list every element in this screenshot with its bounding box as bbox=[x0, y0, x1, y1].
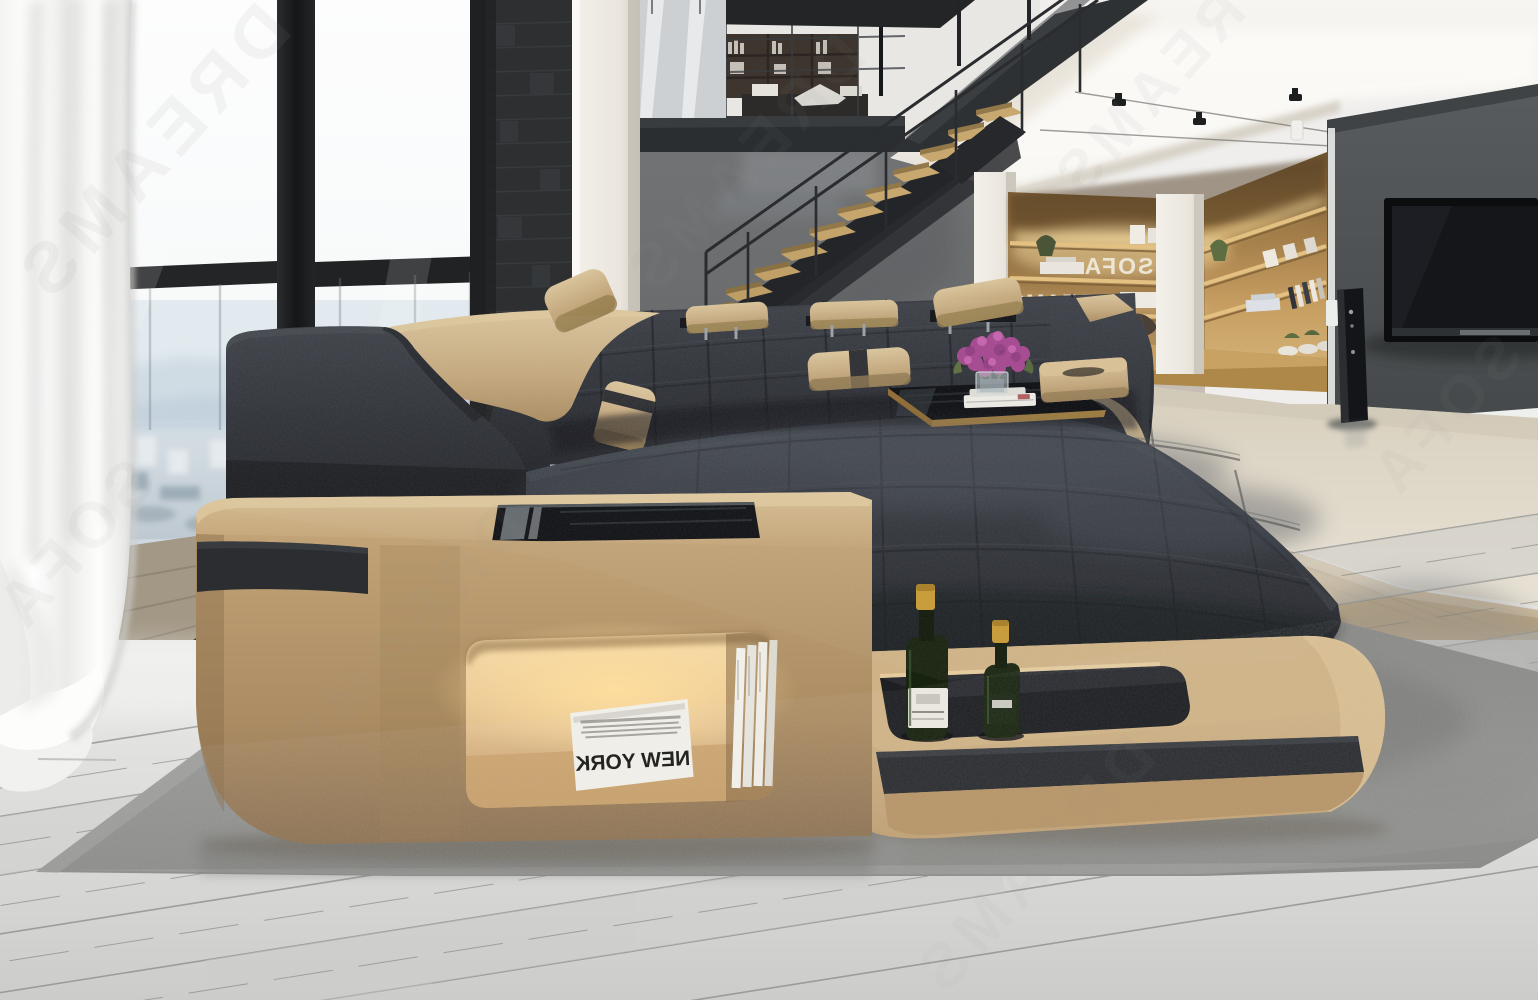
svg-text:SOFA: SOFA bbox=[1083, 253, 1154, 279]
